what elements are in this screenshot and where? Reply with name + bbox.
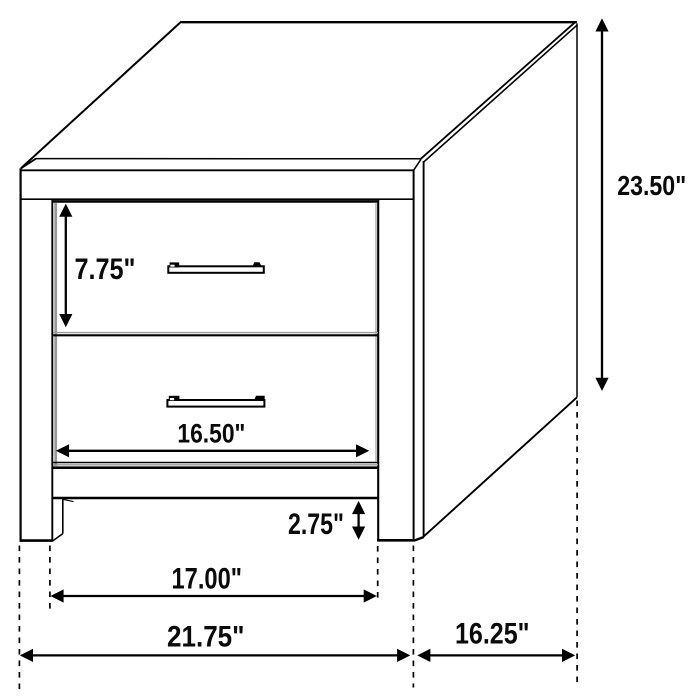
svg-text:7.75": 7.75" xyxy=(75,253,136,286)
svg-text:21.75": 21.75" xyxy=(167,621,245,654)
svg-text:16.50": 16.50" xyxy=(177,418,245,448)
svg-text:23.50": 23.50" xyxy=(617,170,686,201)
svg-text:16.25": 16.25" xyxy=(455,618,530,651)
svg-text:2.75": 2.75" xyxy=(288,508,344,541)
svg-text:17.00": 17.00" xyxy=(172,562,243,595)
